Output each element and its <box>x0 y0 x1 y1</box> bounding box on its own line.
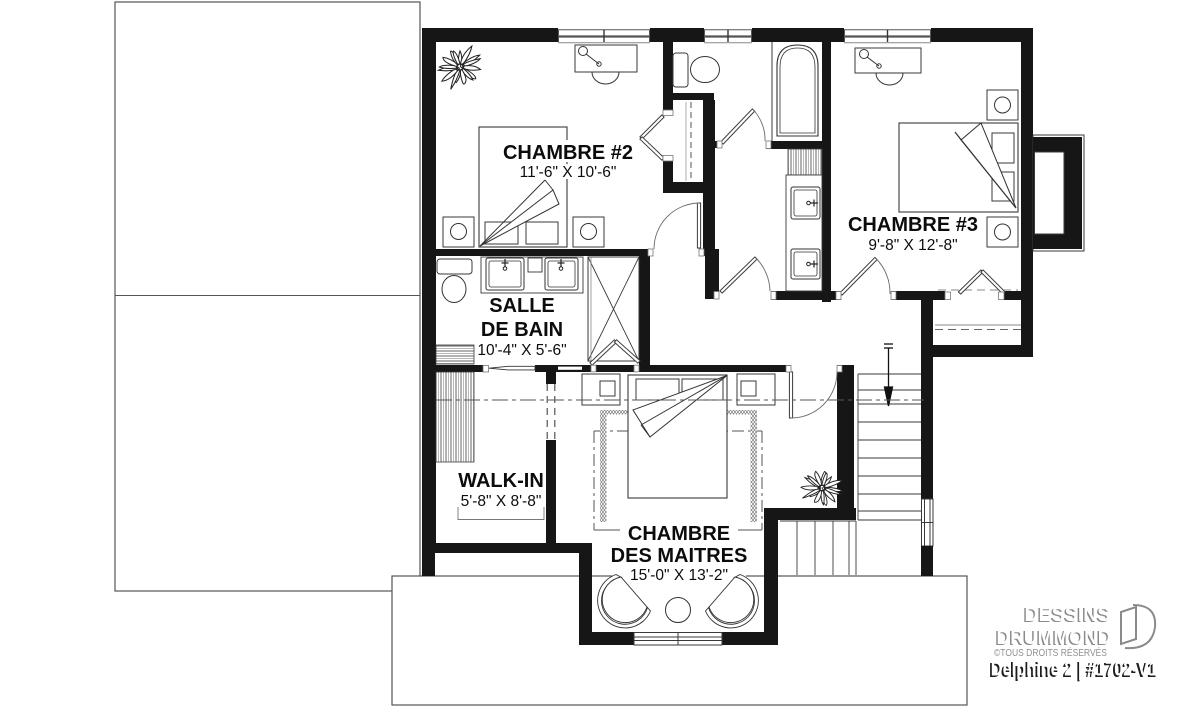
svg-text:CHAMBRE: CHAMBRE <box>628 523 730 545</box>
svg-text:DES MAITRES: DES MAITRES <box>611 545 748 567</box>
svg-text:11'-6" X 10'-6": 11'-6" X 10'-6" <box>520 164 617 181</box>
svg-text:CHAMBRE #2: CHAMBRE #2 <box>503 142 633 164</box>
svg-text:SALLE: SALLE <box>489 295 555 317</box>
svg-text:9'-8" X 12'-8": 9'-8" X 12'-8" <box>868 237 957 254</box>
svg-text:15'-0" X 13'-2": 15'-0" X 13'-2" <box>630 567 728 584</box>
svg-text:WALK-IN: WALK-IN <box>458 470 544 492</box>
svg-text:10'-4" X 5'-6": 10'-4" X 5'-6" <box>477 342 566 359</box>
svg-text:DE BAIN: DE BAIN <box>481 319 563 341</box>
svg-text:Delphine 2 | #1702-V1: Delphine 2 | #1702-V1 <box>991 657 1158 680</box>
svg-text:DRUMMOND: DRUMMOND <box>997 627 1112 649</box>
svg-text:CHAMBRE #3: CHAMBRE #3 <box>848 214 978 236</box>
svg-text:5'-8" X 8'-8": 5'-8" X 8'-8" <box>461 493 542 510</box>
svg-text:DESSINS: DESSINS <box>1025 604 1111 626</box>
